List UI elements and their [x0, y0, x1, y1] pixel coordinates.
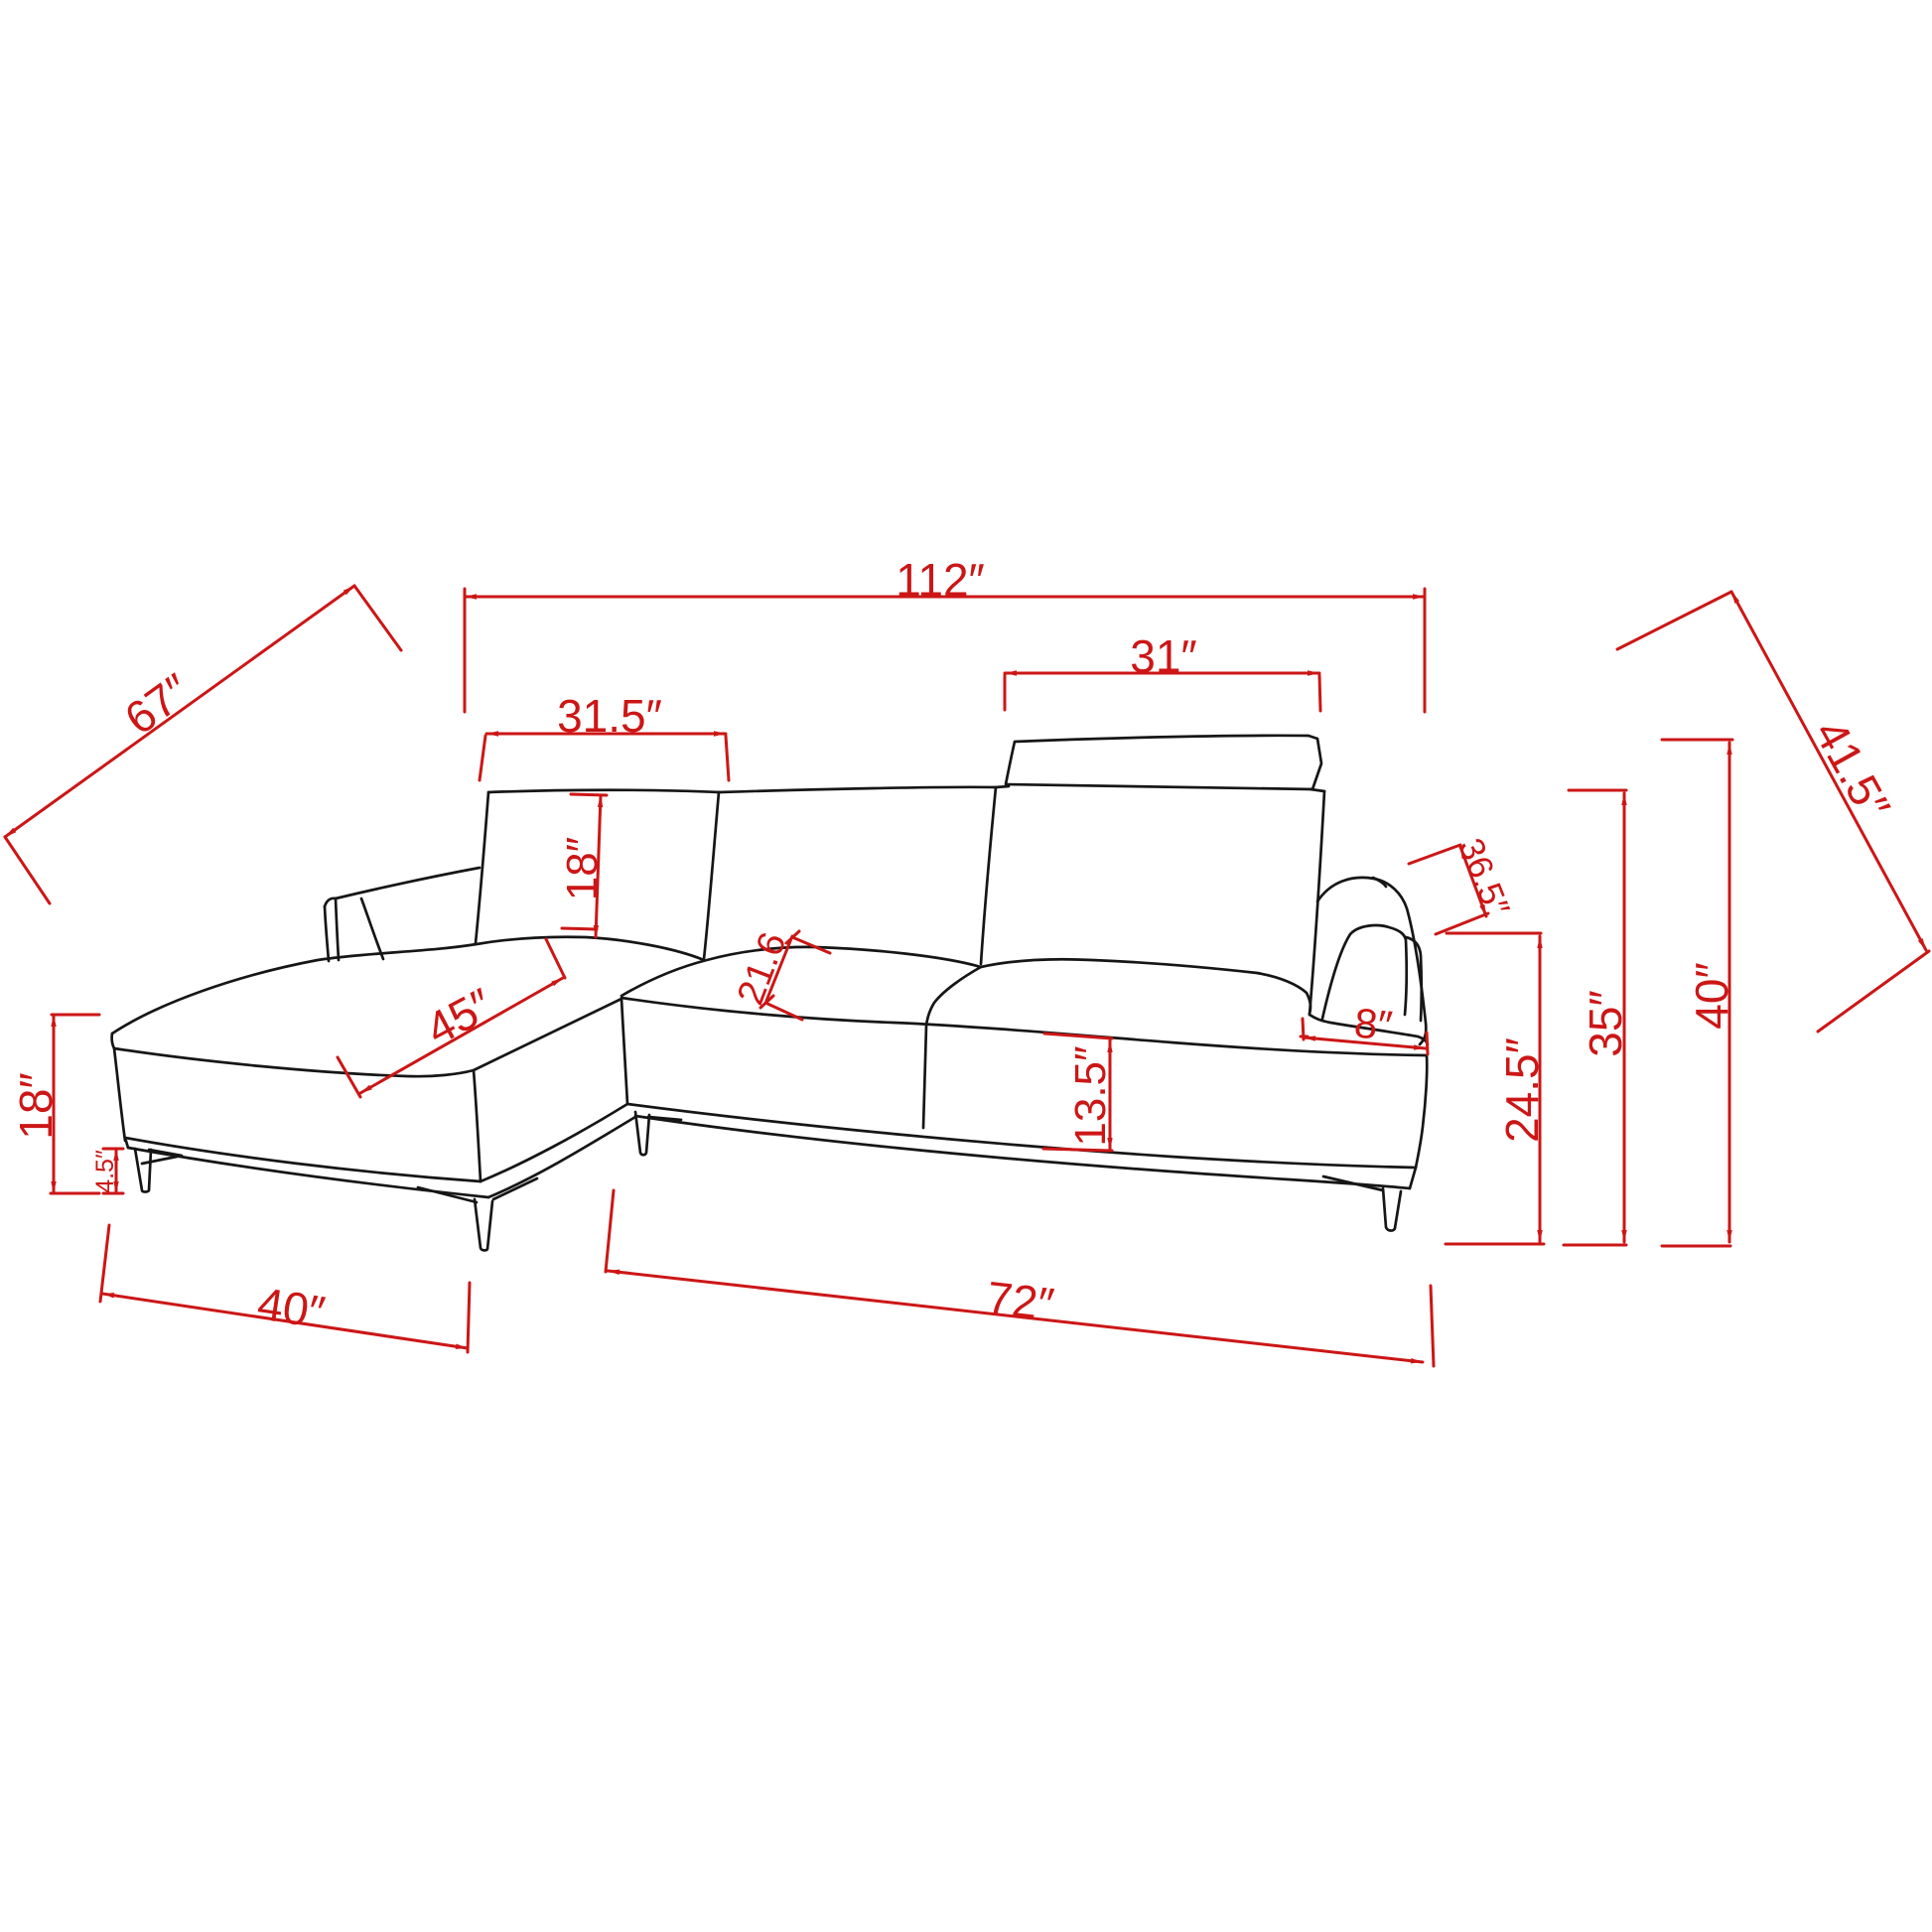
svg-text:8″: 8″ [1352, 999, 1394, 1048]
svg-text:72″: 72″ [984, 1271, 1056, 1329]
svg-text:4.5″: 4.5″ [91, 1150, 119, 1193]
svg-text:112″: 112″ [896, 554, 985, 606]
svg-text:13.5″: 13.5″ [1066, 1045, 1115, 1146]
svg-text:18″: 18″ [10, 1072, 62, 1139]
svg-text:40″: 40″ [1686, 962, 1737, 1029]
svg-text:35″: 35″ [1580, 990, 1631, 1056]
svg-text:31.5″: 31.5″ [557, 690, 662, 742]
svg-text:31″: 31″ [1130, 630, 1196, 682]
svg-text:24.5″: 24.5″ [1496, 1037, 1548, 1143]
svg-text:18″: 18″ [558, 837, 607, 901]
svg-text:40″: 40″ [254, 1277, 328, 1337]
